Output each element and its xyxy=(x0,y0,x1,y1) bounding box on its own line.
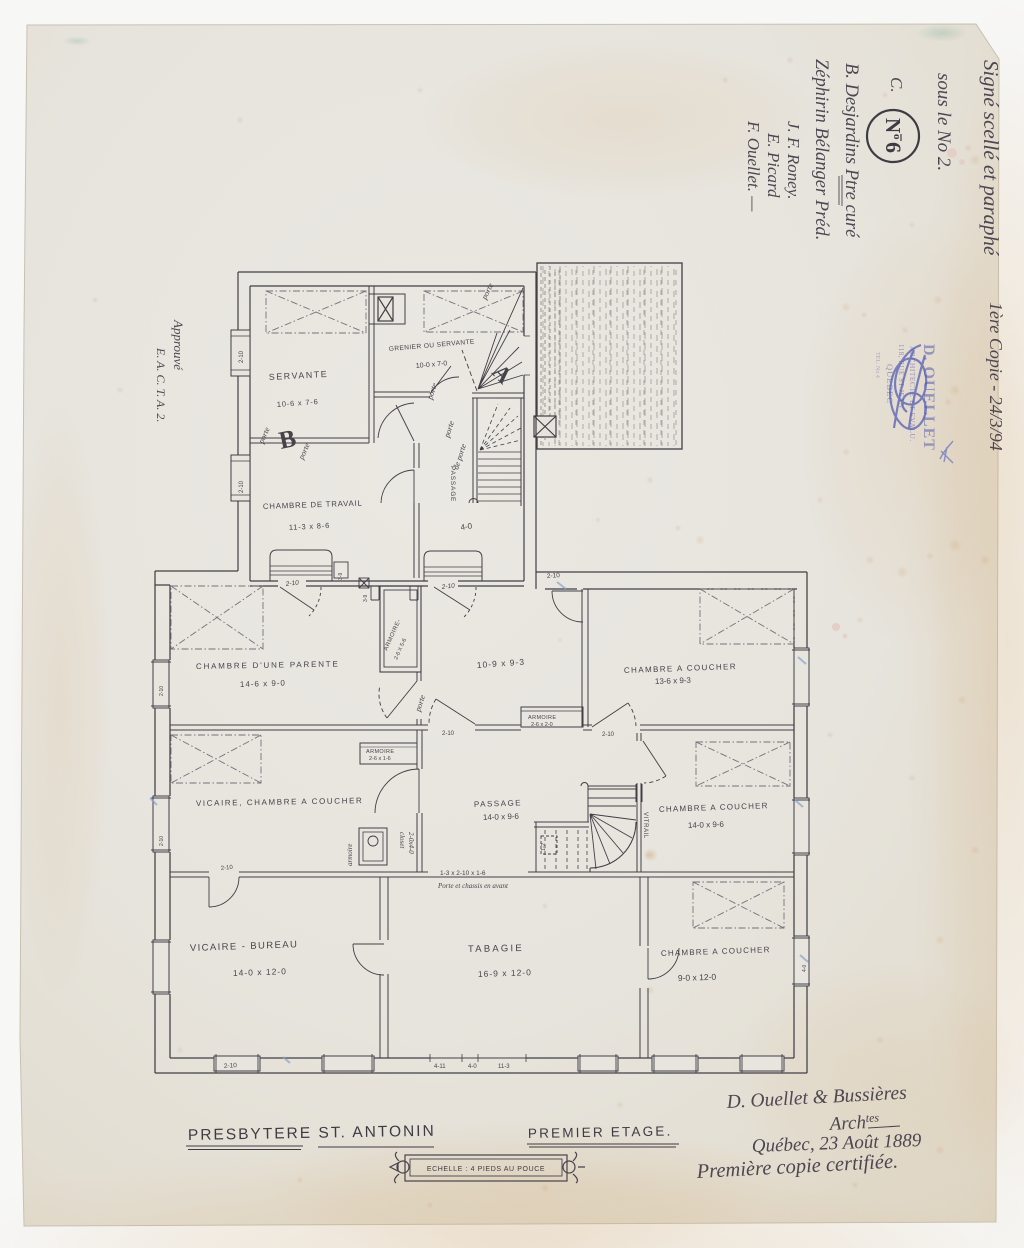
svg-text:13-6 x 9-3: 13-6 x 9-3 xyxy=(655,676,692,686)
svg-text:VITRAIL: VITRAIL xyxy=(642,812,648,839)
svg-text:2-10: 2-10 xyxy=(239,480,245,493)
svg-text:9-0 x 12-0: 9-0 x 12-0 xyxy=(678,972,717,983)
svg-text:2-10: 2-10 xyxy=(239,350,245,363)
svg-text:Zéphirin Bélanger Préd.: Zéphirin Bélanger Préd. xyxy=(811,59,831,240)
svg-text:1ère Copie - 24/3/94: 1ère Copie - 24/3/94 xyxy=(986,302,1006,451)
svg-text:E. A. C. T. A. 2.: E. A. C. T. A. 2. xyxy=(154,347,168,422)
svg-text:PREMIER ETAGE.: PREMIER ETAGE. xyxy=(528,1123,673,1141)
svg-text:2-10: 2-10 xyxy=(224,1062,238,1070)
svg-text:ARMOIRE: ARMOIRE xyxy=(528,715,556,721)
svg-text:2-10: 2-10 xyxy=(159,836,165,846)
svg-text:J. F. Roney.: J. F. Roney. xyxy=(784,121,803,200)
svg-text:3-9: 3-9 xyxy=(338,573,344,580)
svg-text:TABAGIE: TABAGIE xyxy=(468,943,524,955)
svg-text:2-10: 2-10 xyxy=(602,732,615,738)
svg-text:2-10: 2-10 xyxy=(442,731,455,737)
svg-text:2-10: 2-10 xyxy=(547,572,561,580)
svg-text:2-6 x 1-6: 2-6 x 1-6 xyxy=(369,756,391,762)
svg-text:PASSAGE: PASSAGE xyxy=(449,466,456,502)
svg-text:sous le No 2.: sous le No 2. xyxy=(933,73,954,171)
svg-text:ARMOIRE: ARMOIRE xyxy=(366,749,394,755)
svg-text:closet: closet xyxy=(398,832,406,849)
svg-text:armoire: armoire xyxy=(346,844,354,866)
svg-text:14-0 x 12-0: 14-0 x 12-0 xyxy=(233,966,287,978)
svg-text:B. Desjardins Ptre curé: B. Desjardins Ptre curé xyxy=(841,63,861,238)
svg-text:Approuvé: Approuvé xyxy=(171,319,186,371)
svg-text:14-0 x 9-6: 14-0 x 9-6 xyxy=(688,820,725,830)
svg-text:16-9 x 12-0: 16-9 x 12-0 xyxy=(478,967,532,979)
svg-text:3-9: 3-9 xyxy=(363,595,369,602)
svg-text:4-0: 4-0 xyxy=(460,521,473,532)
svg-text:2-6 x 2-0: 2-6 x 2-0 xyxy=(531,722,553,728)
svg-text:F. Ouellet. —: F. Ouellet. — xyxy=(744,120,763,212)
svg-text:ECHELLE : 4 PIEDS AU POUCE: ECHELLE : 4 PIEDS AU POUCE xyxy=(427,1166,545,1173)
svg-text:11-3: 11-3 xyxy=(498,1064,510,1070)
svg-text:14-0 x 9-6: 14-0 x 9-6 xyxy=(483,812,520,822)
svg-text:1-2: 1-2 xyxy=(541,843,547,851)
svg-text:E. Picard: E. Picard xyxy=(764,132,783,198)
svg-text:4-0: 4-0 xyxy=(468,1064,477,1070)
svg-text:TEL. No 4: TEL. No 4 xyxy=(874,352,880,378)
svg-text:Porte et chassis en avant: Porte et chassis en avant xyxy=(437,882,509,890)
svg-text:Signé scellé et paraphé: Signé scellé et paraphé xyxy=(979,60,1003,257)
svg-text:1-3 x 2-10 x 1-6: 1-3 x 2-10 x 1-6 xyxy=(440,870,486,877)
svg-text:4-0: 4-0 xyxy=(802,965,808,972)
svg-text:14-6 x 9-0: 14-6 x 9-0 xyxy=(240,678,286,689)
svg-text:N: N xyxy=(881,118,905,133)
svg-text:PASSAGE: PASSAGE xyxy=(474,798,522,809)
svg-text:4-11: 4-11 xyxy=(434,1064,446,1070)
svg-text:6: 6 xyxy=(881,142,906,153)
svg-text:C.: C. xyxy=(887,77,906,93)
svg-text:2-0x4-0: 2-0x4-0 xyxy=(407,832,415,854)
svg-text:2-10: 2-10 xyxy=(159,686,165,696)
